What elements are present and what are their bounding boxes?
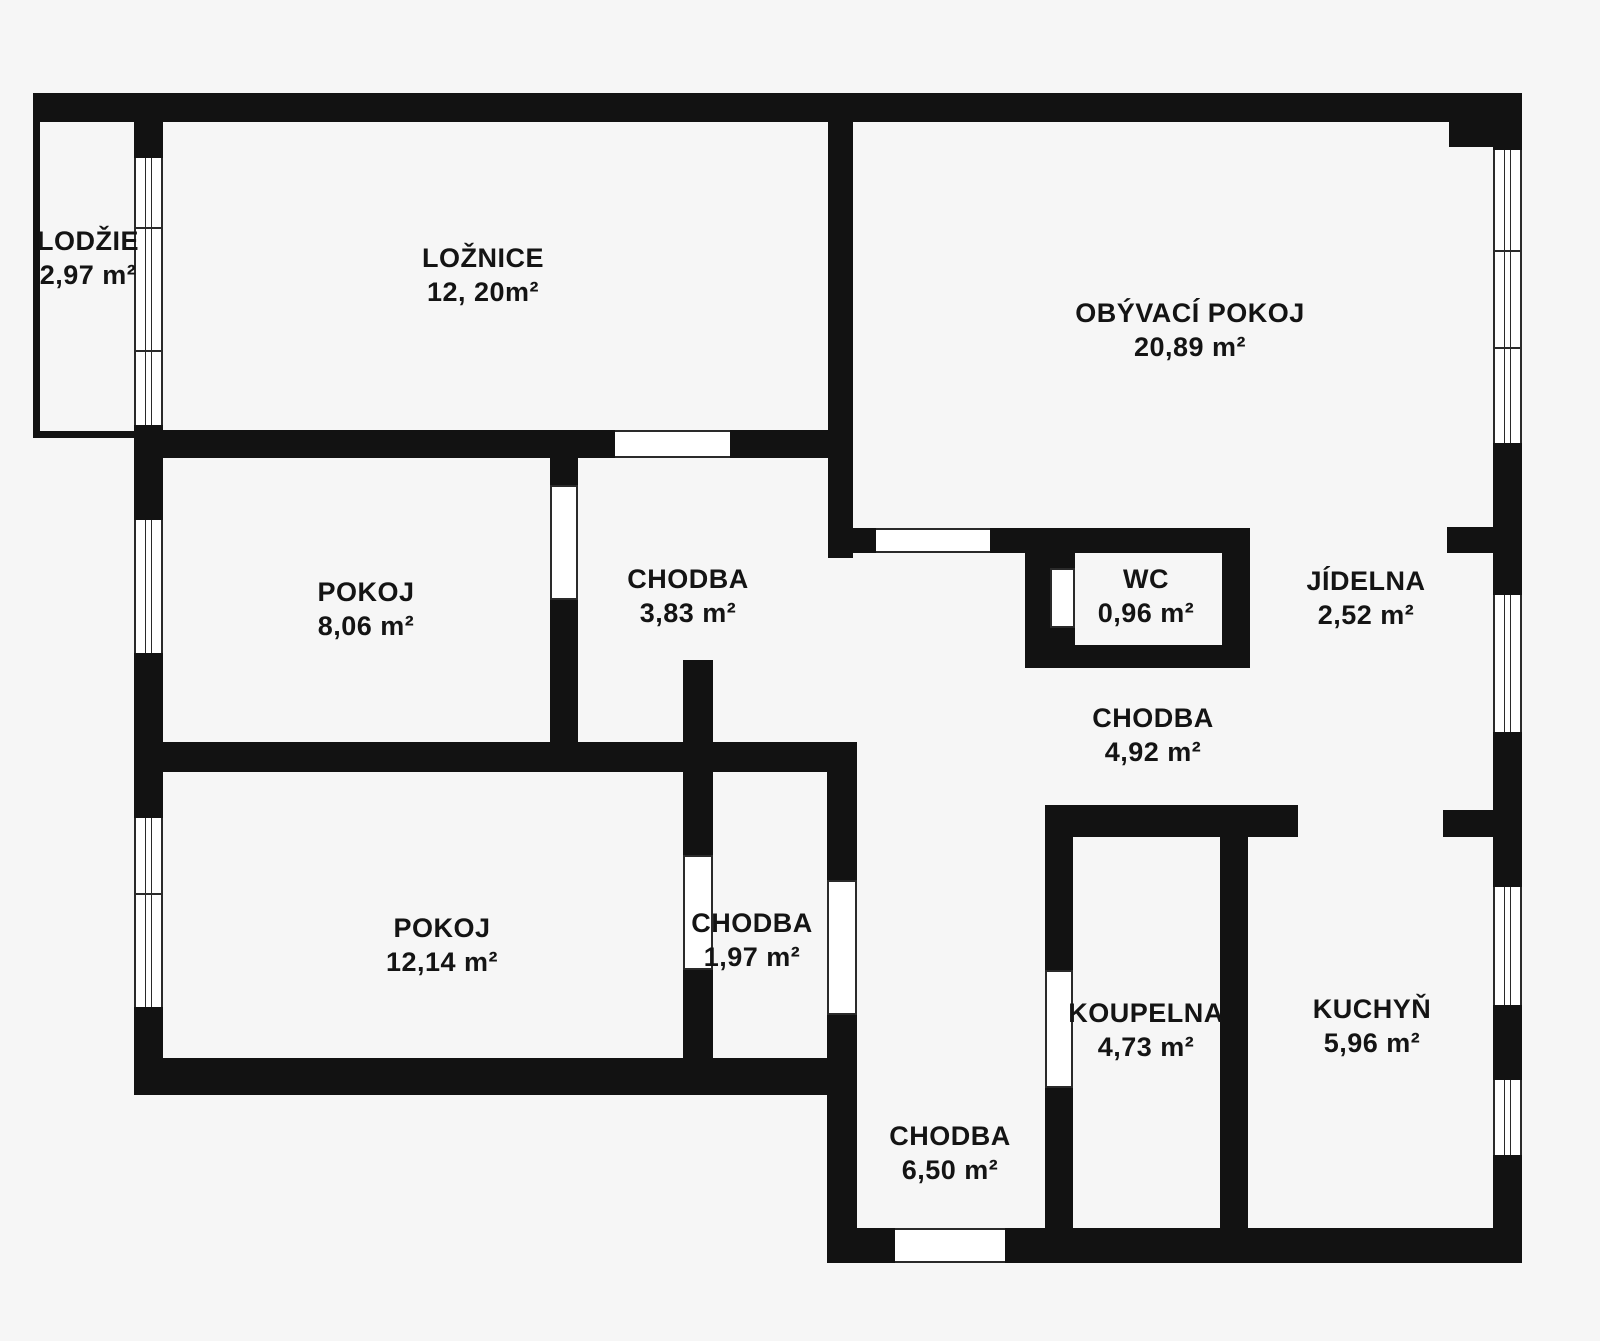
wall [1493, 443, 1522, 595]
window-pane-divider [136, 350, 161, 352]
wall [1005, 1228, 1522, 1263]
window-glass-line [1504, 887, 1506, 1005]
wall [1493, 93, 1522, 150]
window-glass-line [1510, 1080, 1512, 1155]
room-area: 12,14 m² [386, 945, 498, 979]
window-glass-line [145, 520, 147, 653]
room-name: LOŽNICE [422, 241, 544, 275]
wall [1447, 527, 1493, 553]
wall [1045, 1088, 1073, 1228]
door-opening [550, 485, 578, 600]
wall [1045, 837, 1073, 970]
door-opening [895, 1228, 1005, 1263]
wall [33, 431, 134, 438]
window-pane-divider [136, 227, 161, 229]
window-symbol [134, 818, 163, 1007]
room-area: 2,52 m² [1306, 598, 1425, 632]
room-name: LODŽIE [37, 224, 139, 258]
wall [1025, 553, 1050, 645]
room-name: WC [1098, 562, 1195, 596]
wall [1222, 528, 1250, 668]
window-glass-line [1510, 595, 1512, 732]
room-name: POKOJ [386, 911, 498, 945]
door-opening [876, 528, 990, 553]
wall [1443, 810, 1493, 837]
wall [134, 425, 163, 520]
room-area: 12, 20m² [422, 275, 544, 309]
wall [683, 970, 713, 1058]
wall [550, 458, 578, 485]
wall [683, 772, 713, 855]
wall [827, 1015, 857, 1263]
window-glass-line [1504, 595, 1506, 732]
wall [1050, 553, 1075, 568]
window-symbol [1493, 595, 1522, 732]
room-name: KOUPELNA [1068, 996, 1224, 1030]
window-pane-divider [136, 893, 161, 895]
window-pane-divider [1495, 347, 1520, 349]
window-symbol [1493, 887, 1522, 1005]
room-label-chodba-horni: CHODBA3,83 m² [627, 562, 749, 630]
room-name: POKOJ [317, 575, 414, 609]
wall [828, 122, 853, 558]
wall [163, 742, 857, 772]
wall [853, 528, 876, 553]
wall [1025, 645, 1250, 668]
window-symbol [1493, 1080, 1522, 1155]
wall [1050, 628, 1075, 645]
window-glass-line [151, 520, 153, 653]
room-label-kuchyn: KUCHYŇ5,96 m² [1313, 992, 1432, 1060]
wall [134, 93, 163, 158]
wall [827, 1228, 895, 1263]
window-symbol [1493, 150, 1522, 443]
window-glass-line [1510, 887, 1512, 1005]
room-label-wc: WC0,96 m² [1098, 562, 1195, 630]
room-area: 0,96 m² [1098, 596, 1195, 630]
wall [990, 528, 1250, 553]
wall [1493, 1005, 1522, 1080]
room-label-chodba-mala: CHODBA1,97 m² [691, 906, 813, 974]
room-label-jidelna: JÍDELNA2,52 m² [1306, 564, 1425, 632]
window-glass-line [1510, 150, 1512, 443]
room-area: 1,97 m² [691, 940, 813, 974]
wall [827, 742, 857, 880]
room-label-pokoj-dolni: POKOJ12,14 m² [386, 911, 498, 979]
room-name: CHODBA [1092, 701, 1214, 735]
door-opening [1050, 568, 1075, 628]
window-glass-line [1504, 1080, 1506, 1155]
window-pane-divider [1495, 250, 1520, 252]
wall [33, 93, 1522, 122]
room-label-koupelna: KOUPELNA4,73 m² [1068, 996, 1224, 1064]
door-opening [615, 430, 730, 458]
room-label-lodzie: LODŽIE2,97 m² [37, 224, 139, 292]
room-name: KUCHYŇ [1313, 992, 1432, 1026]
door-opening [827, 880, 857, 1015]
room-area: 3,83 m² [627, 596, 749, 630]
wall [683, 660, 713, 742]
room-area: 4,92 m² [1092, 735, 1214, 769]
room-area: 5,96 m² [1313, 1026, 1432, 1060]
room-label-obyvaci-pokoj: OBÝVACÍ POKOJ20,89 m² [1075, 296, 1305, 364]
wall [1220, 837, 1248, 1228]
room-name: JÍDELNA [1306, 564, 1425, 598]
wall [1045, 805, 1298, 837]
wall [1449, 122, 1493, 147]
window-glass-line [151, 158, 153, 425]
wall [1493, 732, 1522, 887]
wall [134, 1058, 857, 1095]
wall [134, 653, 163, 818]
room-area: 20,89 m² [1075, 330, 1305, 364]
room-name: CHODBA [889, 1119, 1011, 1153]
room-label-chodba-stredni: CHODBA4,92 m² [1092, 701, 1214, 769]
room-area: 8,06 m² [317, 609, 414, 643]
room-area: 2,97 m² [37, 258, 139, 292]
window-symbol [134, 520, 163, 653]
window-glass-line [1504, 150, 1506, 443]
window-glass-line [151, 818, 153, 1007]
window-glass-line [145, 158, 147, 425]
room-name: CHODBA [627, 562, 749, 596]
room-area: 4,73 m² [1068, 1030, 1224, 1064]
room-label-loznice: LOŽNICE12, 20m² [422, 241, 544, 309]
room-label-pokoj-horni: POKOJ8,06 m² [317, 575, 414, 643]
room-area: 6,50 m² [889, 1153, 1011, 1187]
room-label-chodba-vstup: CHODBA6,50 m² [889, 1119, 1011, 1187]
window-glass-line [145, 818, 147, 1007]
wall [163, 430, 615, 458]
room-name: CHODBA [691, 906, 813, 940]
room-name: OBÝVACÍ POKOJ [1075, 296, 1305, 330]
floor-plan-canvas: LODŽIE2,97 m²LOŽNICE12, 20m²OBÝVACÍ POKO… [0, 0, 1600, 1341]
